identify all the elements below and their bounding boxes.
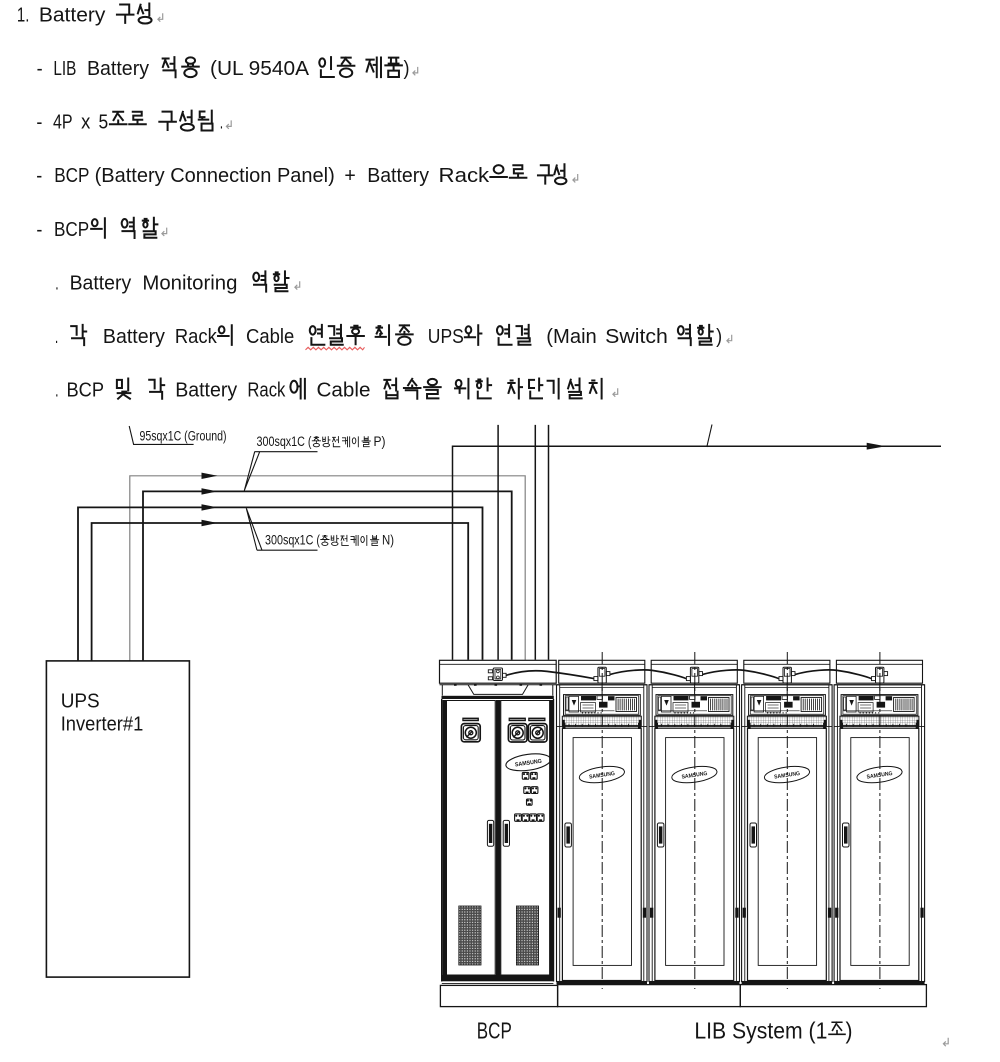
svg-text:.: . bbox=[55, 271, 58, 294]
svg-text:+: + bbox=[344, 164, 355, 187]
svg-text:95sqx1C (Ground): 95sqx1C (Ground) bbox=[140, 429, 227, 445]
svg-text:1.: 1. bbox=[17, 4, 30, 27]
svg-text:UPS: UPS bbox=[428, 325, 464, 348]
svg-text:Cable: Cable bbox=[246, 325, 294, 348]
svg-text:): ) bbox=[716, 325, 722, 348]
svg-text:Battery: Battery bbox=[175, 379, 238, 402]
svg-text:Battery: Battery bbox=[39, 4, 106, 27]
svg-text:BCP: BCP bbox=[477, 1018, 512, 1044]
svg-text:LIB: LIB bbox=[53, 57, 76, 80]
svg-text:Battery: Battery bbox=[70, 271, 132, 294]
svg-text:): ) bbox=[404, 57, 410, 80]
svg-text:Battery: Battery bbox=[367, 164, 430, 187]
svg-text:.: . bbox=[220, 111, 223, 134]
svg-text:): ) bbox=[846, 1018, 853, 1044]
svg-text:BCP: BCP bbox=[54, 164, 89, 187]
svg-text:Inverter#1: Inverter#1 bbox=[61, 713, 144, 736]
svg-text:UPS: UPS bbox=[61, 690, 100, 713]
svg-text:P): P) bbox=[374, 434, 386, 450]
svg-text:-: - bbox=[36, 218, 42, 241]
svg-text:300sqx1C (: 300sqx1C ( bbox=[257, 434, 312, 450]
svg-text:x: x bbox=[81, 111, 91, 134]
svg-text:5: 5 bbox=[99, 111, 109, 134]
svg-text:Rack: Rack bbox=[439, 164, 490, 187]
svg-text:Rack: Rack bbox=[247, 379, 286, 402]
svg-text:-: - bbox=[36, 164, 42, 187]
svg-text:(UL 9540A: (UL 9540A bbox=[210, 57, 309, 80]
svg-text:(Main: (Main bbox=[546, 325, 597, 348]
svg-text:(Battery Connection Panel): (Battery Connection Panel) bbox=[95, 164, 335, 187]
svg-text:.: . bbox=[55, 379, 58, 402]
svg-text:Cable: Cable bbox=[317, 379, 371, 402]
svg-text:BCP: BCP bbox=[54, 218, 89, 241]
svg-text:SAMSUNG: SAMSUNG bbox=[515, 759, 543, 769]
svg-text:Switch: Switch bbox=[605, 325, 668, 348]
svg-text:-: - bbox=[37, 57, 43, 80]
svg-text:N): N) bbox=[382, 533, 394, 549]
svg-text:-: - bbox=[36, 111, 42, 134]
svg-text:Battery: Battery bbox=[87, 57, 150, 80]
svg-text:Battery: Battery bbox=[103, 325, 166, 348]
svg-text:300sqx1C (: 300sqx1C ( bbox=[265, 533, 320, 549]
svg-text:BCP: BCP bbox=[67, 379, 105, 402]
svg-text:4P: 4P bbox=[53, 111, 73, 134]
svg-text:Monitoring: Monitoring bbox=[142, 271, 237, 294]
svg-text:LIB System (1: LIB System (1 bbox=[694, 1018, 827, 1044]
svg-text:.: . bbox=[55, 325, 58, 348]
svg-text:Rack: Rack bbox=[175, 325, 218, 348]
